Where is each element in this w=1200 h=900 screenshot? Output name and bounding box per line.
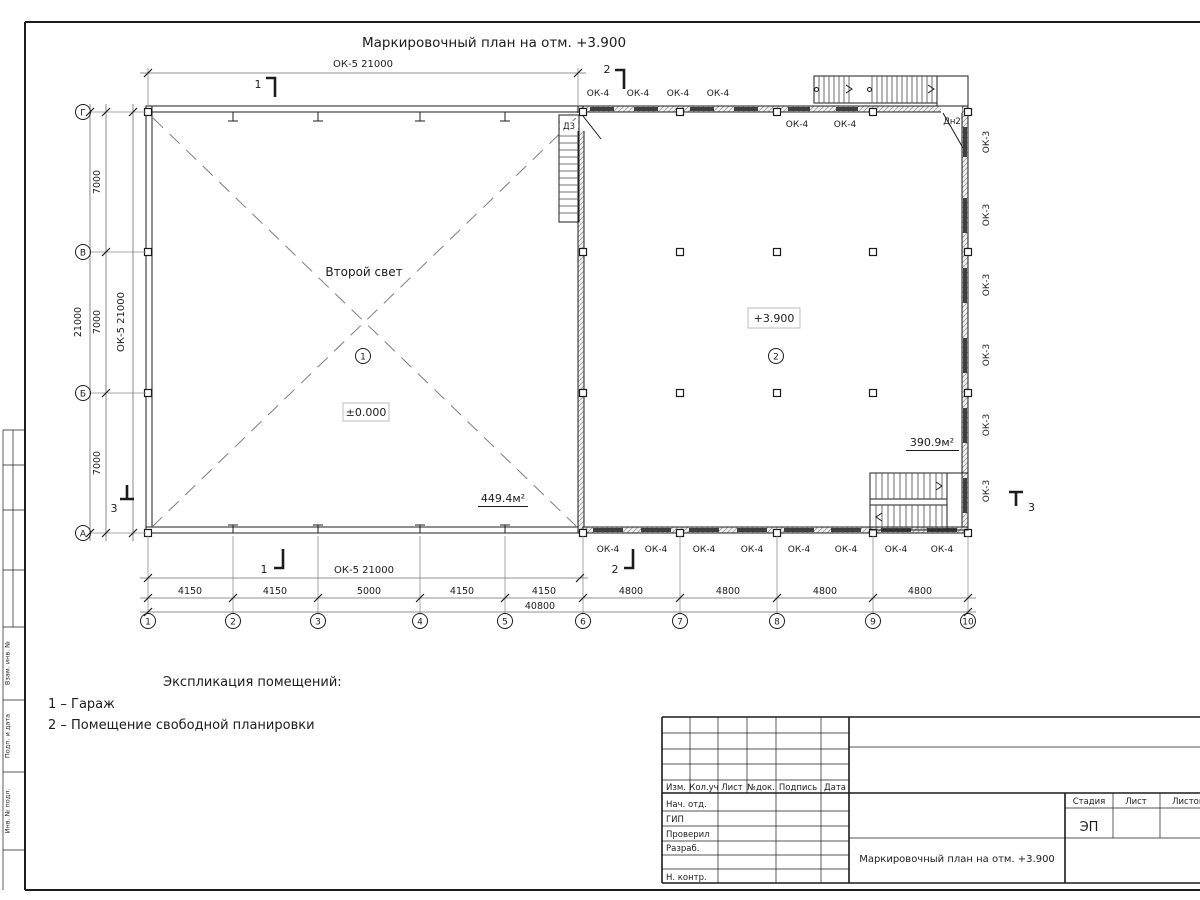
window-label-ok4: ОК-4 bbox=[667, 89, 690, 99]
section-number: 2 bbox=[604, 63, 611, 76]
column bbox=[774, 249, 781, 256]
tb-row-label: Разраб. bbox=[666, 844, 699, 854]
section-number: 1 bbox=[261, 563, 268, 576]
tb-col-label: №док. bbox=[747, 783, 775, 793]
column bbox=[580, 109, 587, 116]
stair-external bbox=[814, 76, 968, 106]
tb-col-label: Изм. bbox=[666, 783, 686, 793]
window-ok4 bbox=[689, 528, 719, 532]
window-label-ok4: ОК-4 bbox=[707, 89, 730, 99]
door-d3-label: Д3 bbox=[563, 122, 575, 132]
tb-col-label: Подпись bbox=[779, 783, 817, 793]
section-mark-line bbox=[624, 549, 633, 568]
dim-span: 4800 bbox=[908, 586, 932, 597]
stair-d3-treads bbox=[559, 122, 579, 213]
axis-number: 5 bbox=[502, 618, 508, 628]
axis-number: 6 bbox=[580, 618, 586, 628]
room-number: 1 bbox=[360, 353, 366, 363]
window-ok4 bbox=[590, 107, 614, 111]
window-label-ok4: ОК-4 bbox=[693, 545, 716, 555]
void-cross-diagonal bbox=[153, 118, 576, 526]
column bbox=[870, 530, 877, 537]
tb-stage-value: ЭП bbox=[1080, 820, 1099, 835]
window-ok4 bbox=[737, 528, 767, 532]
column bbox=[677, 109, 684, 116]
side-stamp: Взам. инв. № Подп. и дата Инв. № подл. bbox=[3, 430, 25, 890]
legend-item: 2 – Помещение свободной планировки bbox=[48, 718, 315, 733]
dim-span: 4800 bbox=[716, 586, 740, 597]
window-ok3 bbox=[963, 478, 967, 513]
column bbox=[870, 390, 877, 397]
axis-number: 1 bbox=[145, 618, 151, 628]
second-light-label: Второй свет bbox=[325, 265, 402, 279]
tb-row-label: Н. контр. bbox=[666, 873, 707, 883]
dim-ok5-top: ОК-5 21000 bbox=[333, 59, 393, 70]
dim-total: 40800 bbox=[525, 601, 555, 612]
window-label-ok4: ОК-4 bbox=[645, 545, 668, 555]
window-label-ok4: ОК-4 bbox=[788, 545, 811, 555]
section-number: 1 bbox=[255, 78, 262, 91]
frame-border bbox=[25, 22, 1200, 890]
window-label-ok3: ОК-3 bbox=[982, 274, 992, 296]
tb-col-label: Кол.уч bbox=[689, 783, 718, 793]
dim-span: 4800 bbox=[619, 586, 643, 597]
door-dn2-label: Дн2 bbox=[943, 117, 961, 127]
garage-left-wall bbox=[146, 106, 152, 533]
room-area: 449.4м² bbox=[481, 492, 525, 505]
page-title: Маркировочный план на отм. +3.900 bbox=[362, 35, 626, 51]
dim-total: 21000 bbox=[73, 307, 84, 337]
columns bbox=[145, 109, 972, 537]
column bbox=[580, 249, 587, 256]
dim-span: 5000 bbox=[357, 586, 381, 597]
room-area: 390.9м² bbox=[910, 436, 954, 449]
door-d3-leaf bbox=[583, 116, 601, 139]
window-label-ok3: ОК-3 bbox=[982, 344, 992, 366]
dim-span: 7000 bbox=[92, 310, 103, 334]
window-label-ok4: ОК-4 bbox=[627, 89, 650, 99]
dim-ok5-bottom: ОК-5 21000 bbox=[334, 565, 394, 576]
tb-stage-label: Стадия bbox=[1073, 797, 1106, 807]
garage-walls bbox=[146, 106, 583, 533]
side-stamp-cell-label: Инв. № подл. bbox=[4, 789, 12, 834]
dim-span: 4150 bbox=[263, 586, 287, 597]
window-ok3 bbox=[963, 198, 967, 233]
tb-doc-title: Маркировочный план на отм. +3.900 bbox=[859, 854, 1055, 865]
column bbox=[965, 390, 972, 397]
window-label-ok4: ОК-4 bbox=[931, 545, 954, 555]
sheet-frame bbox=[25, 22, 1200, 890]
stair-stringer bbox=[870, 499, 947, 505]
section-mark-line bbox=[1009, 492, 1023, 506]
tb-row-label: Проверил bbox=[666, 830, 710, 840]
steel-post-symbols bbox=[228, 112, 510, 533]
dim-span: 4150 bbox=[532, 586, 556, 597]
tb-row-label: ГИП bbox=[666, 815, 684, 825]
window-ok3 bbox=[963, 127, 967, 157]
column bbox=[870, 249, 877, 256]
tb-sheets-label: Листов bbox=[1172, 797, 1200, 807]
axis-number: 7 bbox=[677, 618, 683, 628]
room-legend: Экспликация помещений: 1 – Гараж 2 – Пом… bbox=[48, 675, 342, 733]
column-axis-bubbles: 1 2 3 4 5 6 7 8 9 10 bbox=[141, 614, 976, 629]
axis-number: 2 bbox=[230, 618, 236, 628]
tb-sheet-label: Лист bbox=[1125, 797, 1147, 807]
axis-letter: Г bbox=[80, 109, 86, 119]
stair-internal bbox=[870, 473, 968, 530]
column bbox=[774, 390, 781, 397]
window-ok4 bbox=[836, 107, 858, 111]
axis-number: 4 bbox=[417, 618, 423, 628]
window-label-ok4: ОК-4 bbox=[834, 120, 857, 130]
axis-number: 9 bbox=[870, 618, 876, 628]
dim-span: 4150 bbox=[450, 586, 474, 597]
side-stamp-cell-label: Взам. инв. № bbox=[4, 641, 12, 685]
section-number: 3 bbox=[111, 502, 118, 515]
legend-item: 1 – Гараж bbox=[48, 697, 115, 712]
column-axis-numbers: 1 2 3 4 5 6 7 8 9 10 bbox=[145, 618, 974, 628]
window-label-ok4: ОК-4 bbox=[885, 545, 908, 555]
level-mark-3900: +3.900 bbox=[754, 312, 795, 325]
window-ok4 bbox=[593, 528, 623, 532]
drawing-canvas: Взам. инв. № Подп. и дата Инв. № подл. М… bbox=[0, 0, 1200, 900]
tb-row-label: Нач. отд. bbox=[666, 800, 707, 810]
stair-external-treads bbox=[819, 76, 932, 103]
window-label-ok3: ОК-3 bbox=[982, 414, 992, 436]
tb-col-label: Дата bbox=[824, 783, 846, 793]
column bbox=[774, 530, 781, 537]
title-block-labels: Изм. Кол.уч Лист №док. Подпись Дата Нач.… bbox=[666, 783, 1200, 883]
dim-span: 4150 bbox=[178, 586, 202, 597]
column bbox=[677, 530, 684, 537]
hall-right-wall bbox=[962, 106, 968, 533]
section-number: 3 bbox=[1028, 501, 1035, 514]
stair-direction-arrow bbox=[876, 482, 942, 521]
stair-d3: Д3 bbox=[559, 115, 579, 222]
column bbox=[965, 530, 972, 537]
axis-number: 8 bbox=[774, 618, 780, 628]
window-ok4 bbox=[784, 528, 814, 532]
section-mark-line bbox=[615, 70, 624, 89]
dim-span: 7000 bbox=[92, 170, 103, 194]
window-ok4 bbox=[634, 107, 658, 111]
stair-direction-arrow bbox=[846, 85, 934, 93]
void-cross-diagonal bbox=[153, 118, 576, 526]
window-ok4 bbox=[690, 107, 714, 111]
section-number: 2 bbox=[612, 563, 619, 576]
void-cross bbox=[153, 118, 576, 526]
tb-col-label: Лист bbox=[721, 783, 743, 793]
stair-start-marker bbox=[868, 88, 872, 92]
drawing-sheet: Взам. инв. № Подп. и дата Инв. № подл. М… bbox=[0, 0, 1200, 900]
room-annotations: Второй свет ±0.000 +3.900 1 2 449.4м² 39… bbox=[325, 117, 960, 507]
column bbox=[677, 249, 684, 256]
axis-number: 3 bbox=[315, 618, 321, 628]
dim-ok5-left: ОК-5 21000 bbox=[116, 292, 127, 352]
window-ok3 bbox=[963, 338, 967, 373]
section-mark-line bbox=[274, 549, 283, 568]
window-label-ok4: ОК-4 bbox=[597, 545, 620, 555]
window-label-ok3: ОК-3 bbox=[982, 204, 992, 226]
column bbox=[580, 530, 587, 537]
title-block: Изм. Кол.уч Лист №док. Подпись Дата Нач.… bbox=[662, 717, 1200, 883]
garage-bottom-wall bbox=[146, 527, 583, 533]
column bbox=[774, 109, 781, 116]
axis-letter: Б bbox=[80, 390, 86, 400]
legend-heading: Экспликация помещений: bbox=[163, 675, 342, 690]
floor-plan: Д3 Второй свет ±0.000 +3.900 1 bbox=[145, 76, 993, 555]
level-mark-0000: ±0.000 bbox=[346, 406, 387, 419]
stair-internal-outline bbox=[870, 473, 968, 530]
garage-top-wall bbox=[146, 106, 583, 112]
window-label-ok4: ОК-4 bbox=[786, 120, 809, 130]
window-ok3 bbox=[963, 268, 967, 303]
window-ok4 bbox=[641, 528, 671, 532]
column bbox=[677, 390, 684, 397]
window-label-ok4: ОК-4 bbox=[741, 545, 764, 555]
column bbox=[870, 109, 877, 116]
window-label-ok3: ОК-3 bbox=[982, 480, 992, 502]
window-label-ok4: ОК-4 bbox=[587, 89, 610, 99]
section-mark-line bbox=[266, 78, 275, 97]
axis-letter: А bbox=[80, 530, 87, 540]
stair-external-outline bbox=[814, 76, 937, 103]
room-number: 2 bbox=[773, 353, 779, 363]
window-ok4 bbox=[734, 107, 758, 111]
stair-start-marker bbox=[815, 88, 819, 92]
window-ok4 bbox=[831, 528, 861, 532]
column bbox=[965, 109, 972, 116]
dimension-ticks bbox=[86, 69, 972, 616]
window-label-ok3: ОК-3 bbox=[982, 131, 992, 153]
stair-external-landing bbox=[937, 76, 968, 106]
dim-span: 4800 bbox=[813, 586, 837, 597]
dim-span: 7000 bbox=[92, 451, 103, 475]
window-label-ok4: ОК-4 bbox=[835, 545, 858, 555]
window-ok3 bbox=[963, 408, 967, 443]
window-ok4 bbox=[788, 107, 810, 111]
column bbox=[580, 390, 587, 397]
axis-number: 10 bbox=[962, 618, 974, 628]
side-stamp-cell-label: Подп. и дата bbox=[4, 714, 12, 758]
section-mark-line bbox=[120, 485, 134, 499]
column bbox=[965, 249, 972, 256]
axis-letter: В bbox=[80, 249, 86, 259]
stair-internal-treads bbox=[876, 473, 942, 530]
